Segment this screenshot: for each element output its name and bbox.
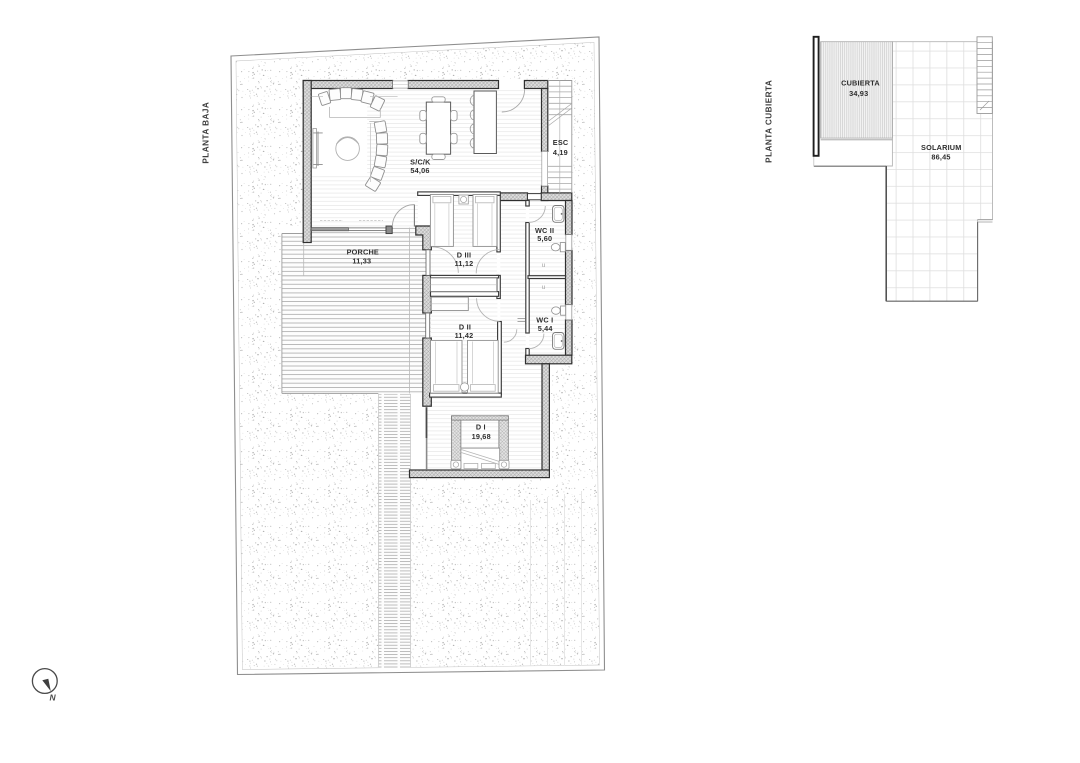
svg-text:CUBIERTA: CUBIERTA xyxy=(841,79,880,88)
svg-text:N: N xyxy=(50,693,57,703)
svg-text:11,33: 11,33 xyxy=(352,257,371,266)
svg-text:PLANTA BAJA: PLANTA BAJA xyxy=(202,102,211,164)
svg-text:S/C/K: S/C/K xyxy=(410,158,431,167)
svg-text:D II: D II xyxy=(459,322,471,331)
svg-text:86,45: 86,45 xyxy=(931,152,950,161)
svg-text:19,68: 19,68 xyxy=(472,432,491,441)
svg-text:ESC: ESC xyxy=(553,138,569,147)
svg-text:34,93: 34,93 xyxy=(849,89,868,98)
svg-text:D III: D III xyxy=(457,250,471,259)
svg-text:PLANTA CUBIERTA: PLANTA CUBIERTA xyxy=(765,80,774,163)
svg-text:54,06: 54,06 xyxy=(410,166,429,175)
svg-text:PORCHE: PORCHE xyxy=(347,247,379,256)
svg-text:u: u xyxy=(542,263,545,269)
svg-text:5,44: 5,44 xyxy=(538,324,554,333)
svg-text:u: u xyxy=(542,285,545,291)
svg-text:11,42: 11,42 xyxy=(455,331,474,340)
svg-text:SOLARIUM: SOLARIUM xyxy=(921,143,962,152)
svg-text:11,12: 11,12 xyxy=(455,259,474,268)
svg-text:5,60: 5,60 xyxy=(537,234,552,243)
svg-text:4,19: 4,19 xyxy=(553,148,568,157)
svg-text:D I: D I xyxy=(476,422,486,431)
